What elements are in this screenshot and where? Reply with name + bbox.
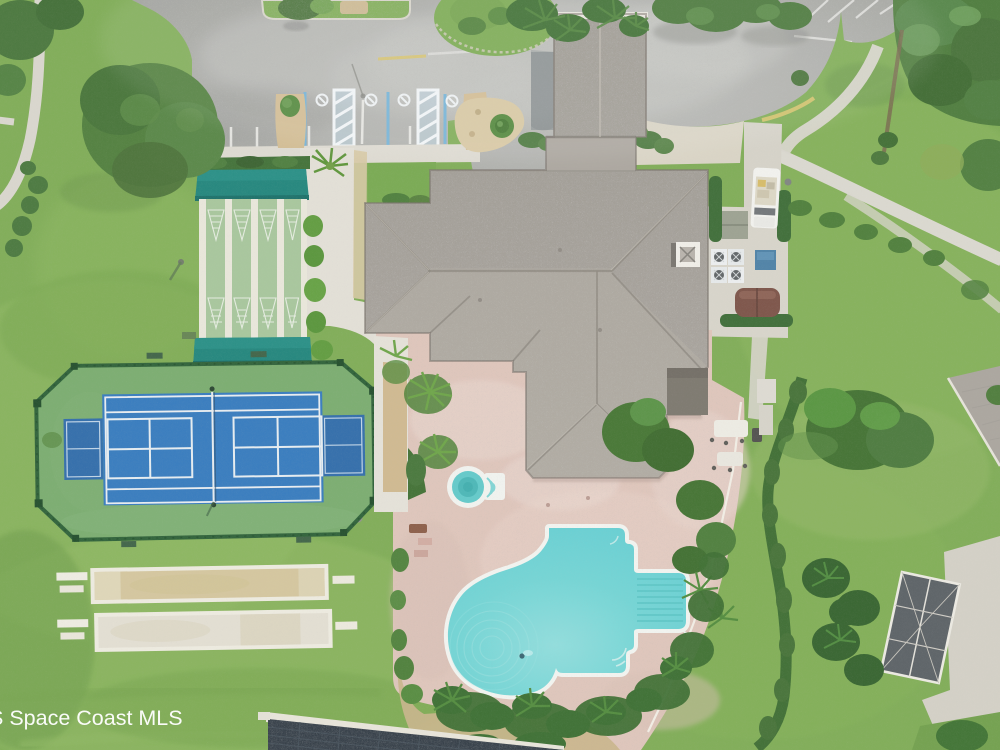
svg-text:S Space Coast MLS: S Space Coast MLS (0, 706, 183, 730)
